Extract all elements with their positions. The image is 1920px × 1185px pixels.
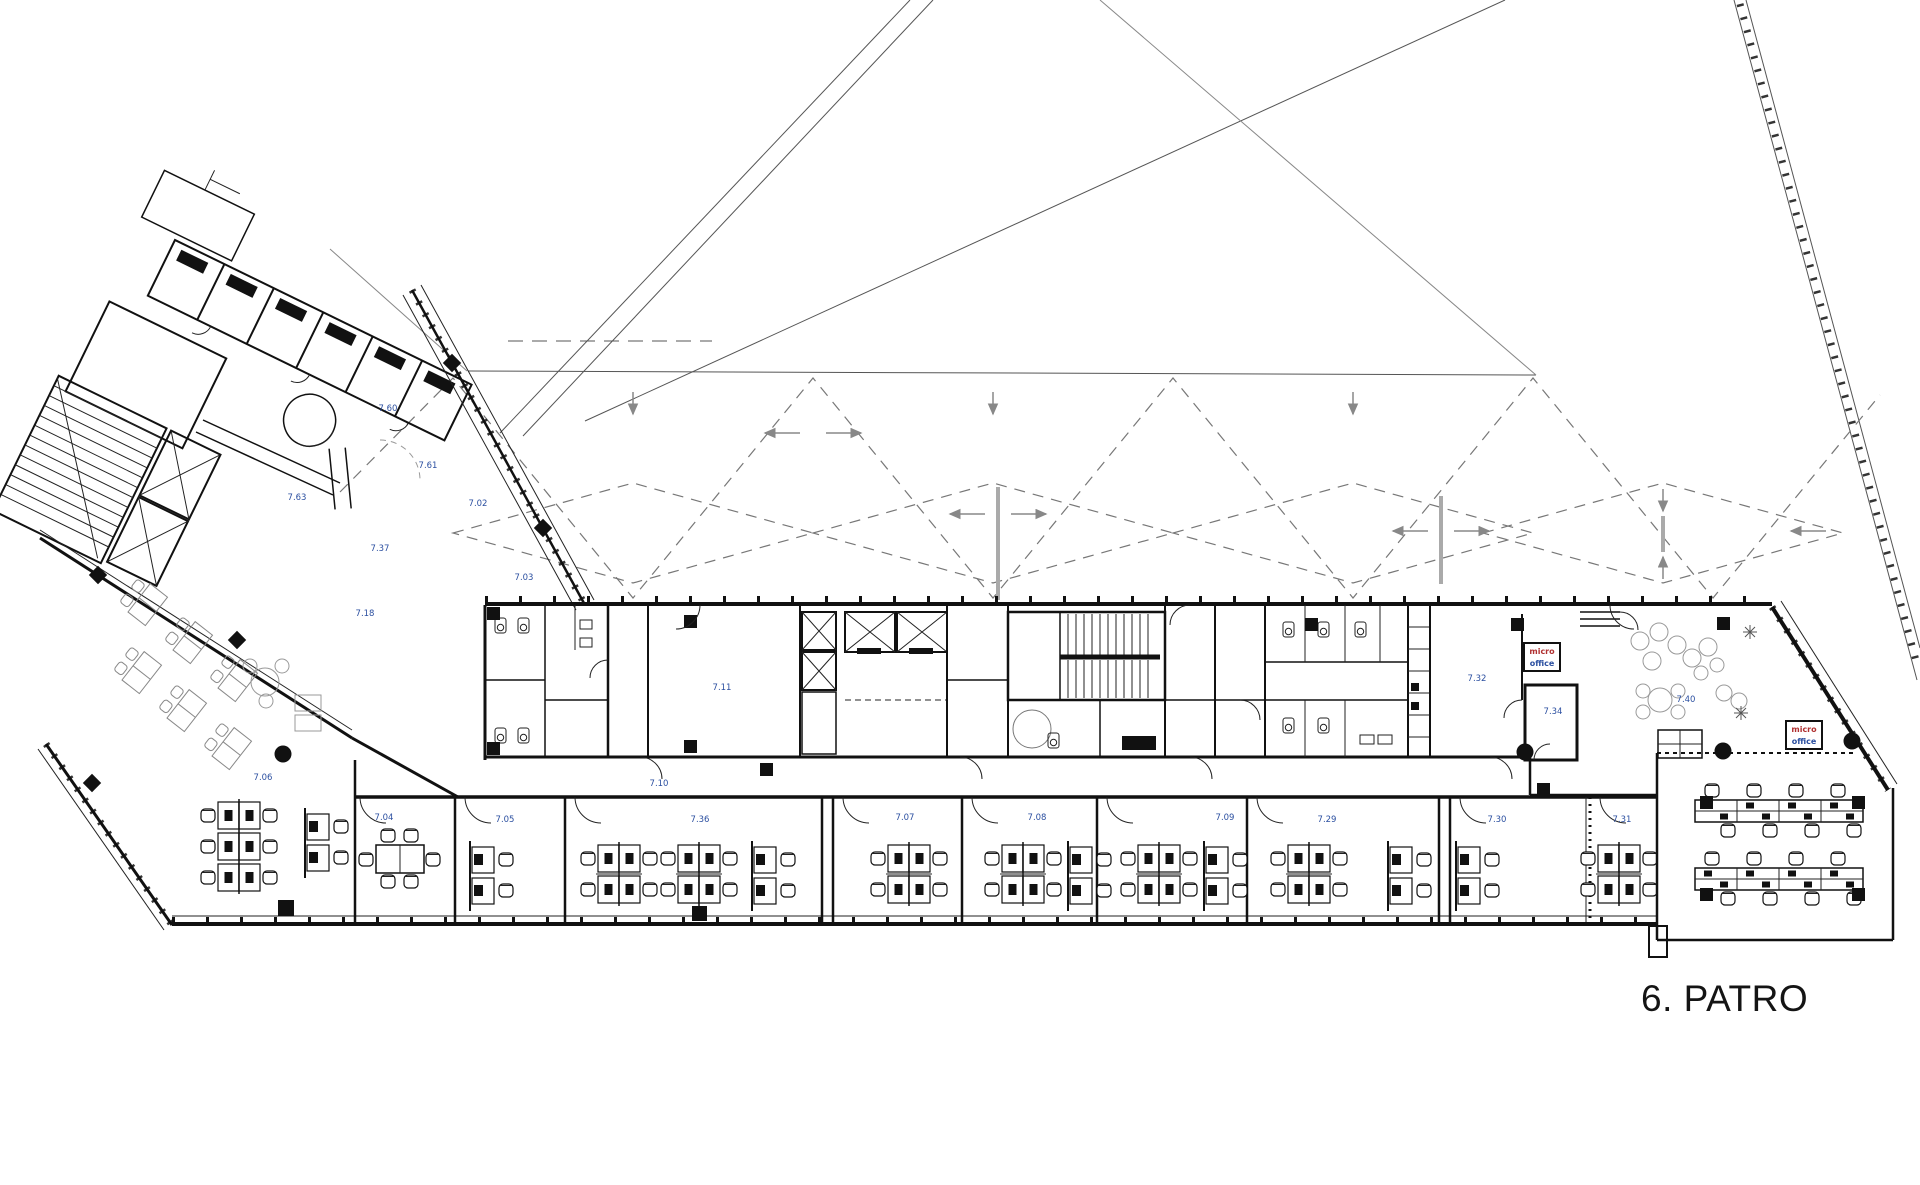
wing-glazed-facade	[196, 285, 594, 610]
room-label: 7.32	[1468, 674, 1487, 684]
benching-room	[1657, 753, 1893, 940]
room-label: 7.11	[713, 683, 732, 693]
room-label: 7.61	[419, 461, 438, 471]
micro-office-label-box: microoffice	[1786, 721, 1822, 749]
room-label: 7.30	[1488, 815, 1507, 825]
elevator-bank-1	[802, 612, 836, 754]
room-label: 7.07	[896, 813, 915, 823]
service-shaft-stack	[1408, 605, 1430, 757]
svg-text:micro: micro	[1791, 725, 1817, 734]
upper-left-wing	[0, 148, 507, 675]
room-label: 7.02	[469, 499, 488, 509]
room-label: 7.40	[1677, 695, 1696, 705]
room-label: 7.04	[375, 813, 394, 823]
missing-glyph-box	[1648, 925, 1668, 958]
room-label: 7.34	[1544, 707, 1563, 717]
core-staircase	[1008, 605, 1165, 757]
room-label: 7.31	[1613, 815, 1632, 825]
svg-text:micro: micro	[1529, 647, 1555, 656]
wc-block-left	[485, 605, 608, 757]
room-label: 7.03	[515, 573, 534, 583]
elevator-bank-2	[845, 612, 947, 700]
room-label: 7.09	[1216, 813, 1235, 823]
svg-text:office: office	[1792, 737, 1817, 746]
room-label: 7.10	[650, 779, 669, 789]
svg-text:office: office	[1530, 659, 1555, 668]
roof-bracing	[340, 378, 1880, 600]
floor-plan-page: 7.607.617.637.027.037.377.187.117.107.06…	[0, 0, 1920, 1185]
room-label: 7.63	[288, 493, 307, 503]
room-label: 7.36	[691, 815, 710, 825]
room-label: 7.37	[371, 544, 390, 554]
floor-plan-drawing: 7.607.617.637.027.037.377.187.117.107.06…	[0, 0, 1920, 1185]
floor-title-block: 6. PATRO	[1641, 925, 1808, 1020]
direction-arrows	[633, 392, 1826, 579]
office-band	[172, 760, 1657, 924]
room-label: 7.05	[496, 815, 515, 825]
floor-title: 6. PATRO	[1641, 978, 1808, 1020]
room-label: 7.18	[356, 609, 375, 619]
lounge-area	[1580, 605, 1757, 758]
room-label: 7.29	[1318, 815, 1337, 825]
room-label: 7.06	[254, 773, 273, 783]
micro-office-label-box: microoffice	[1524, 643, 1560, 671]
room-label: 7.60	[379, 404, 398, 414]
wc-block-right	[1265, 605, 1408, 757]
room-label: 7.08	[1028, 813, 1047, 823]
